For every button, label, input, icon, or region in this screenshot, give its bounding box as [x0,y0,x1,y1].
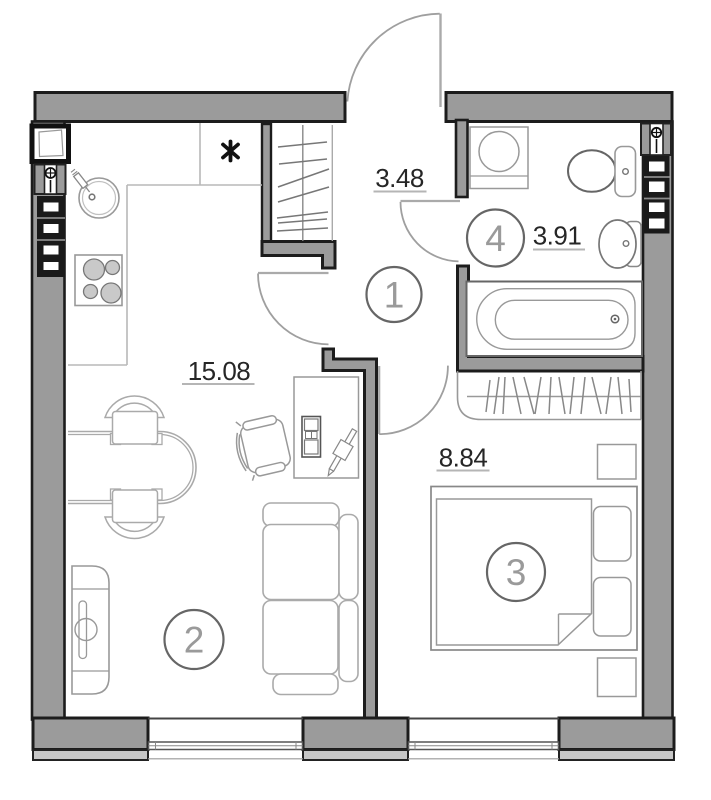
svg-text:3: 3 [506,552,527,593]
svg-text:3.91: 3.91 [533,221,582,251]
svg-text:3.48: 3.48 [375,163,424,193]
svg-text:2: 2 [184,620,205,661]
svg-text:1: 1 [384,275,405,316]
svg-text:8.84: 8.84 [439,443,488,473]
svg-text:15.08: 15.08 [188,356,251,386]
svg-text:4: 4 [485,218,506,259]
